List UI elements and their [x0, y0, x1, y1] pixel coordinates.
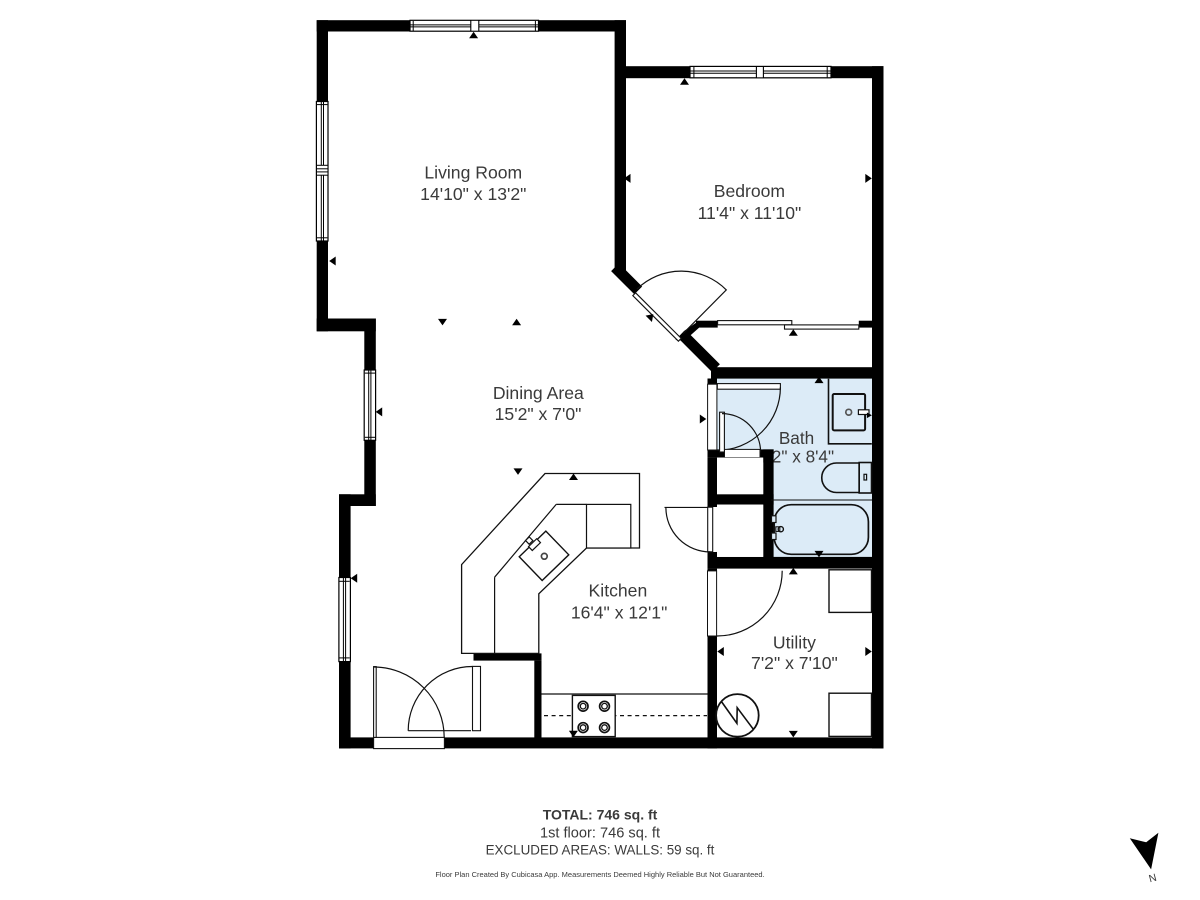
- svg-text:Living Room: Living Room: [424, 163, 522, 183]
- svg-text:Bedroom: Bedroom: [714, 181, 785, 201]
- svg-text:11'4" x 11'10": 11'4" x 11'10": [698, 203, 802, 223]
- svg-text:Dining Area: Dining Area: [493, 383, 584, 403]
- svg-text:14'10" x 13'2": 14'10" x 13'2": [420, 184, 526, 204]
- svg-text:TOTAL: 746 sq. ft: TOTAL: 746 sq. ft: [543, 807, 658, 823]
- svg-text:Floor Plan Created By Cubicasa: Floor Plan Created By Cubicasa App. Meas…: [435, 870, 764, 879]
- svg-text:7'2" x 7'10": 7'2" x 7'10": [751, 653, 838, 673]
- svg-text:Utility: Utility: [773, 633, 816, 653]
- svg-text:16'4" x 12'1": 16'4" x 12'1": [571, 603, 668, 623]
- svg-text:Bath: Bath: [779, 428, 814, 448]
- svg-text:15'2" x 7'0": 15'2" x 7'0": [495, 404, 582, 424]
- svg-text:1st floor: 746 sq. ft: 1st floor: 746 sq. ft: [540, 826, 660, 842]
- svg-text:Kitchen: Kitchen: [589, 581, 648, 601]
- svg-text:EXCLUDED AREAS: WALLS: 59 sq.: EXCLUDED AREAS: WALLS: 59 sq. ft: [486, 843, 715, 858]
